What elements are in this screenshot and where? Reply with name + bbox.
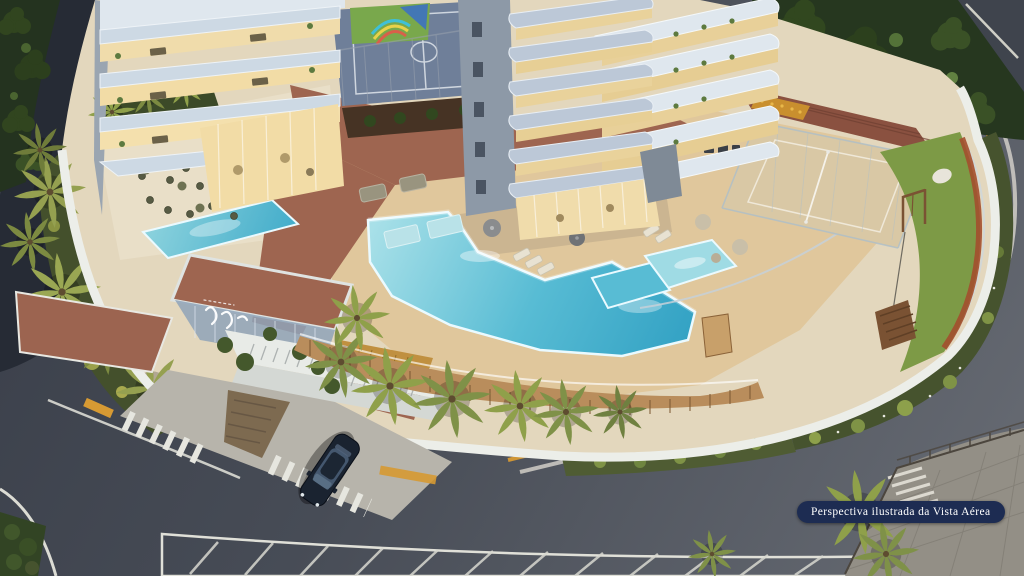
- umbrella: [695, 214, 711, 230]
- umbrella: [732, 239, 748, 255]
- aerial-rendering: [0, 0, 1024, 576]
- rendering-canvas: Perspectiva ilustrada da Vista Aérea: [0, 0, 1024, 576]
- table: [711, 253, 721, 263]
- tower-side-wall: [458, 0, 516, 216]
- caption-badge: Perspectiva ilustrada da Vista Aérea: [797, 501, 1005, 523]
- caption-text: Perspectiva ilustrada da Vista Aérea: [811, 506, 991, 518]
- wood-gate: [702, 314, 732, 357]
